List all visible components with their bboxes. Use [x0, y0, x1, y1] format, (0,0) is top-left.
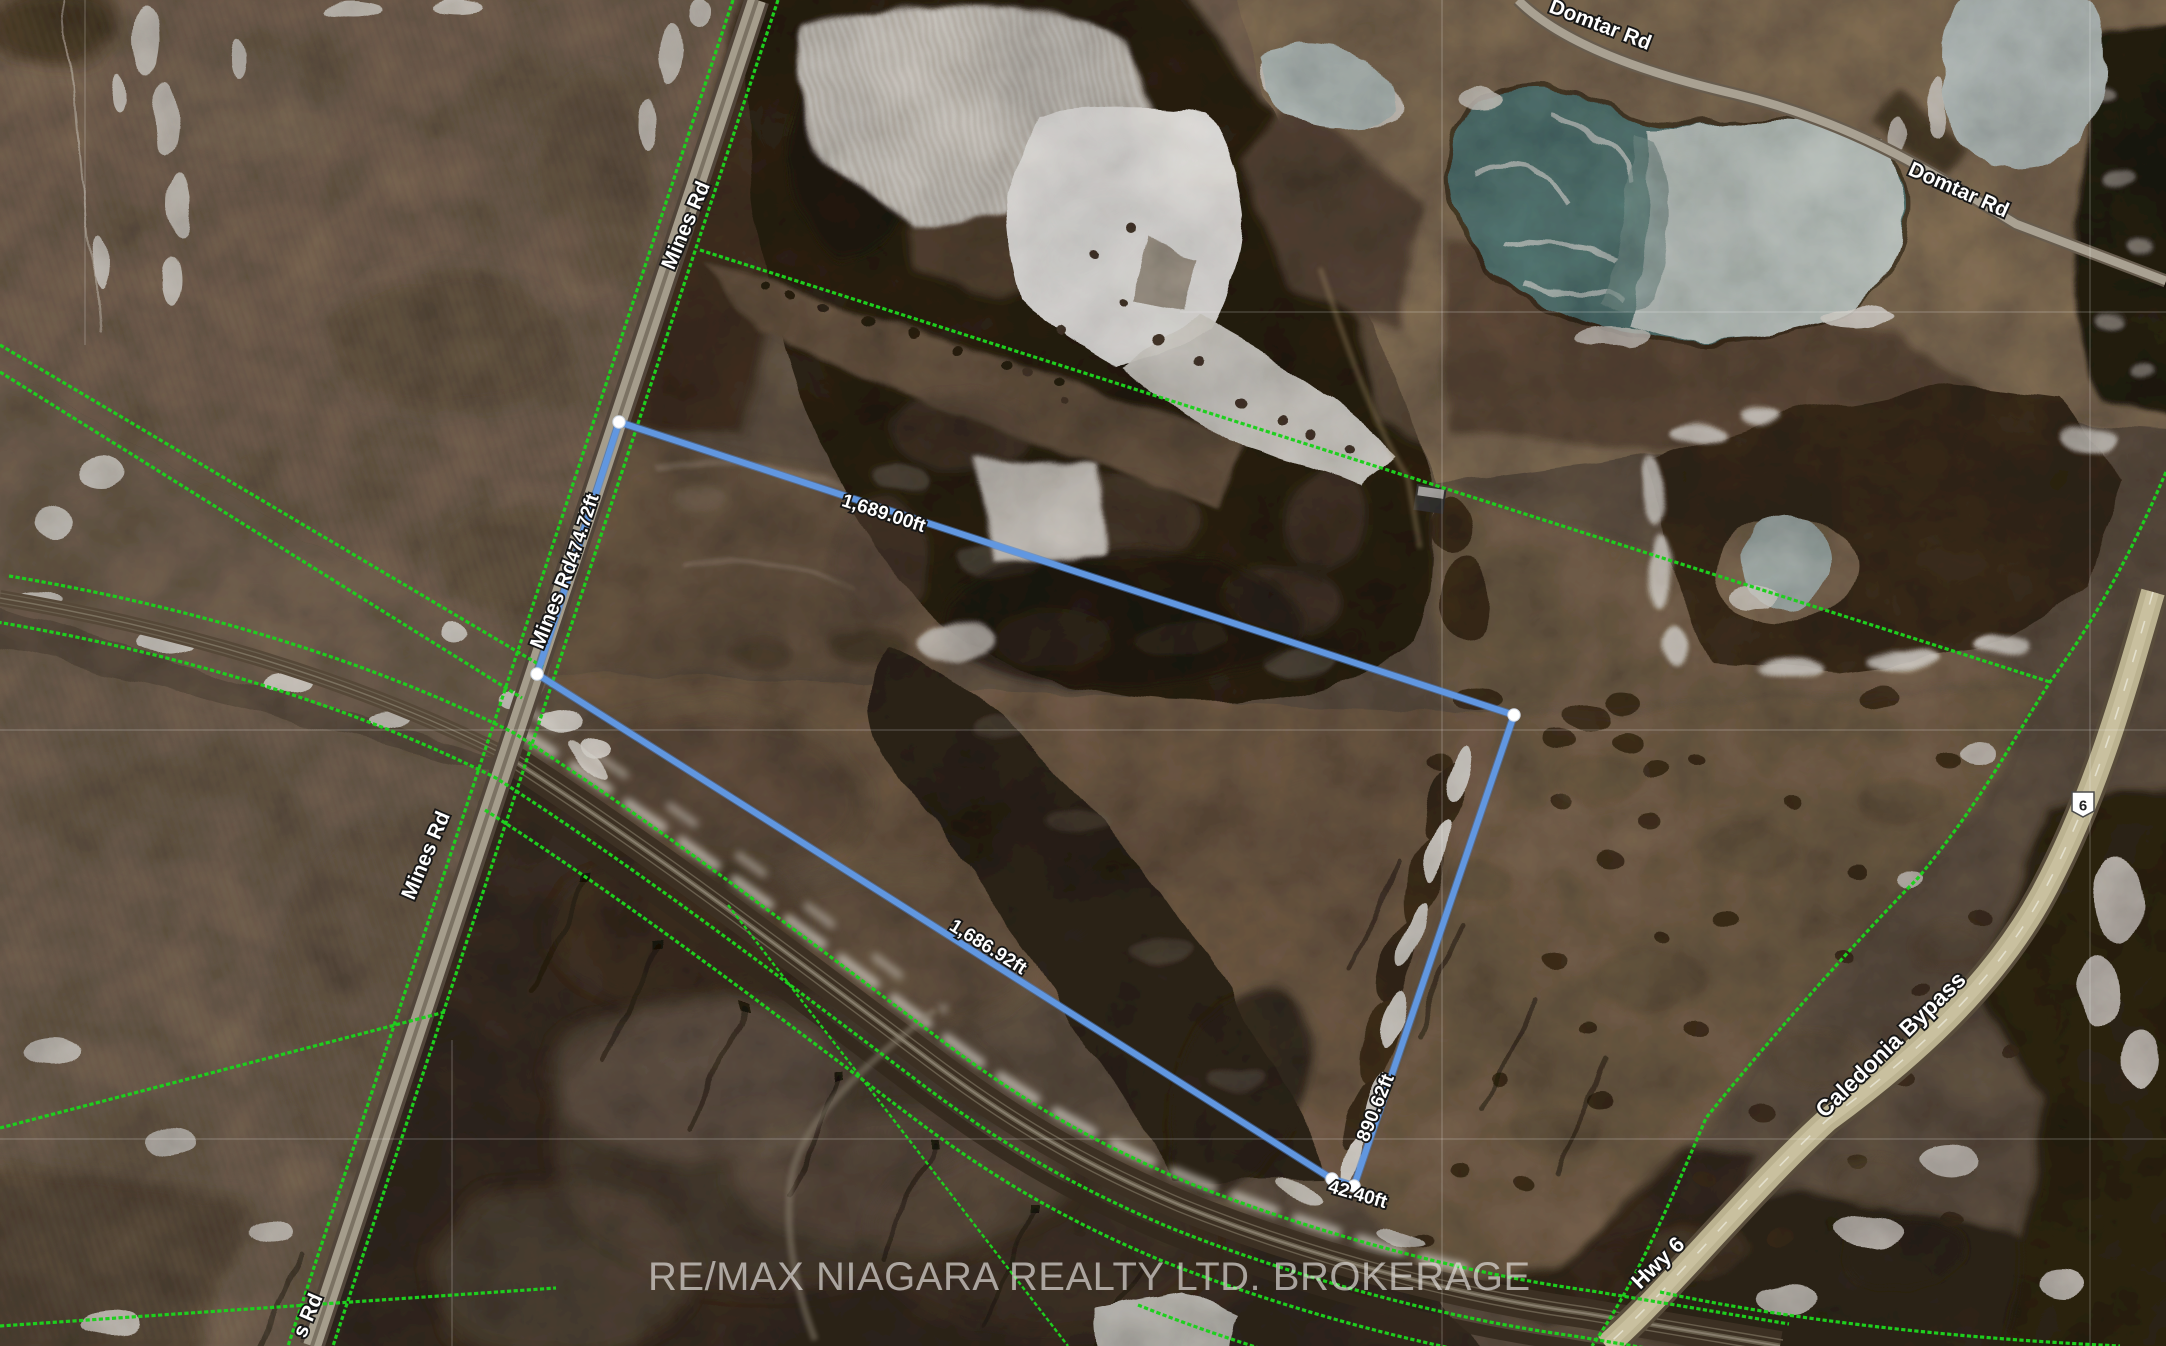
svg-text:6: 6: [2079, 798, 2087, 815]
svg-text:RE/MAX NIAGARA REALTY LTD. BRO: RE/MAX NIAGARA REALTY LTD. BROKERAGE: [648, 1255, 1531, 1299]
